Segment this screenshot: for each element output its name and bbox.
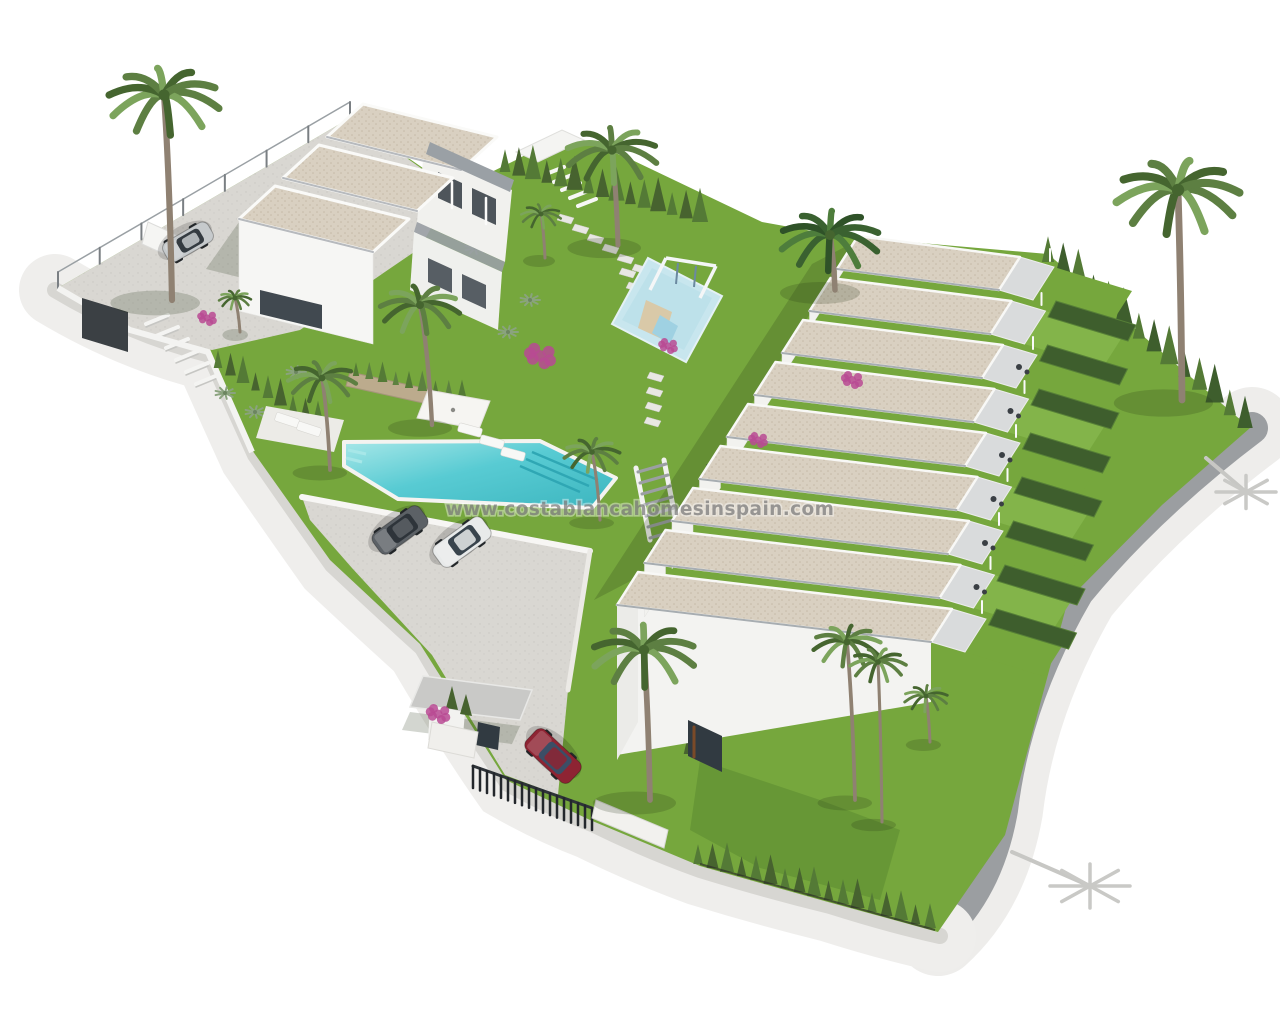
bougainvillea-bloom	[855, 379, 863, 387]
tree-shadow	[1114, 389, 1213, 416]
parasol-pole	[451, 408, 455, 412]
palm-crown	[607, 145, 616, 154]
tree-shadow	[222, 329, 248, 341]
palm-crown	[589, 449, 595, 455]
terrace-chair	[982, 540, 988, 546]
palm-frond	[828, 235, 830, 271]
palm-crown	[1172, 184, 1184, 196]
palm-frond	[612, 150, 614, 183]
tree-shadow	[388, 419, 452, 437]
terrace-chair	[999, 452, 1005, 458]
agave-center	[528, 298, 532, 302]
palm-crown	[158, 89, 169, 100]
tree-shadow	[293, 466, 347, 481]
palm-crown	[233, 296, 238, 301]
tree-shadow	[906, 739, 941, 751]
palm-crown	[844, 639, 851, 646]
palm-crown	[825, 230, 835, 240]
terrace-chair	[1016, 414, 1021, 419]
palm-crown	[319, 375, 326, 382]
tree-shadow	[593, 792, 676, 815]
terrace-chair	[1025, 370, 1030, 375]
palm-crown	[539, 212, 544, 217]
tree-shadow	[780, 282, 860, 304]
palm-crown	[416, 301, 424, 309]
watermark-text: www.costablancahomesinspain.com	[446, 499, 835, 520]
bougainvillea-bloom	[197, 313, 204, 320]
palm-crown	[924, 694, 929, 699]
agave-center	[506, 330, 510, 334]
bougainvillea-bloom	[426, 707, 435, 716]
bougainvillea-bloom	[524, 347, 536, 359]
tree-shadow	[818, 796, 872, 811]
bougainvillea-bloom	[544, 354, 556, 366]
terrace-chair	[1016, 364, 1022, 370]
render-image: www.costablancahomesinspain.com	[0, 0, 1280, 1024]
palm-frond	[644, 650, 645, 687]
terrace-chair	[999, 502, 1004, 507]
terrace-chair	[974, 584, 980, 590]
tree-shadow	[567, 238, 641, 258]
agave-center	[253, 410, 257, 414]
terrace-chair	[991, 546, 996, 551]
bougainvillea-bloom	[671, 345, 678, 352]
bougainvillea-bloom	[658, 341, 665, 348]
terrace-chair	[1008, 458, 1013, 463]
palm-crown	[639, 645, 649, 655]
agave-center	[223, 391, 227, 395]
bougainvillea-bloom	[210, 317, 217, 324]
tree-shadow	[851, 819, 896, 831]
terrace-chair	[991, 496, 997, 502]
terrace-chair	[1008, 408, 1014, 414]
tree-shadow	[523, 255, 555, 267]
entrance-door	[476, 722, 500, 750]
tree-shadow	[110, 291, 200, 316]
site-plan-render: www.costablancahomesinspain.com	[0, 0, 1280, 1024]
palm-crown	[875, 659, 881, 665]
bougainvillea-bloom	[441, 713, 450, 722]
bougainvillea-bloom	[761, 439, 768, 446]
palm-trunk	[1178, 190, 1182, 400]
terrace-chair	[982, 590, 987, 595]
bougainvillea-bloom	[748, 435, 755, 442]
bougainvillea-bloom	[841, 374, 849, 382]
